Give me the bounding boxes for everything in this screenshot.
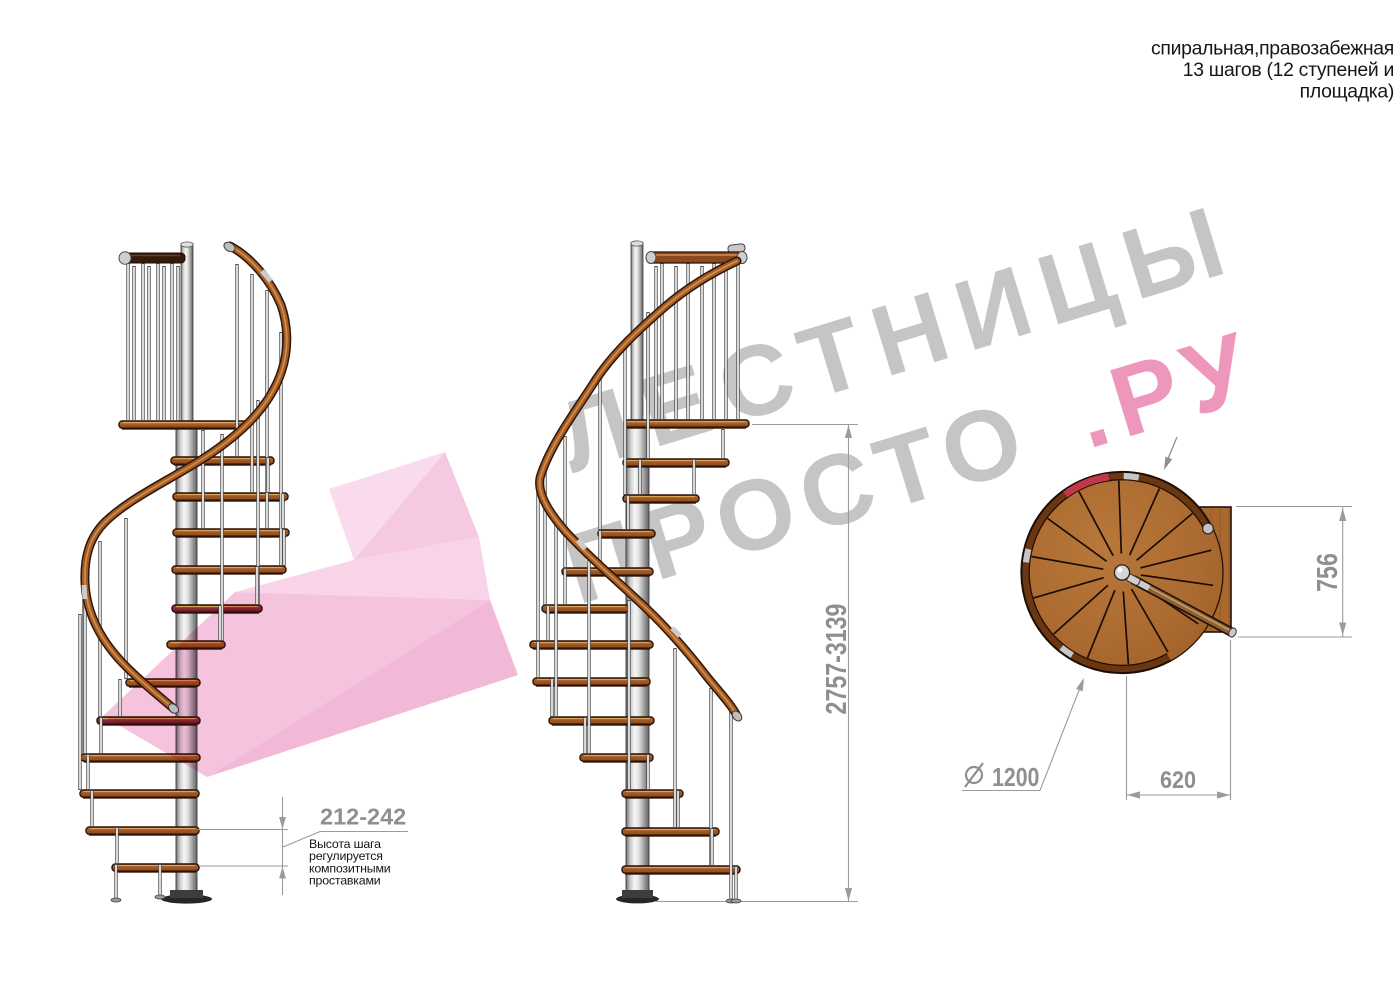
svg-text:1200: 1200 [992, 763, 1039, 793]
svg-text:620: 620 [1160, 766, 1196, 793]
svg-text:2757-3139: 2757-3139 [819, 604, 852, 715]
svg-text:756: 756 [1310, 553, 1343, 592]
svg-text:212-242: 212-242 [320, 804, 406, 830]
svg-text:Высота шагарегулируетсякомпози: Высота шагарегулируетсякомпозитнымипрост… [309, 837, 391, 888]
